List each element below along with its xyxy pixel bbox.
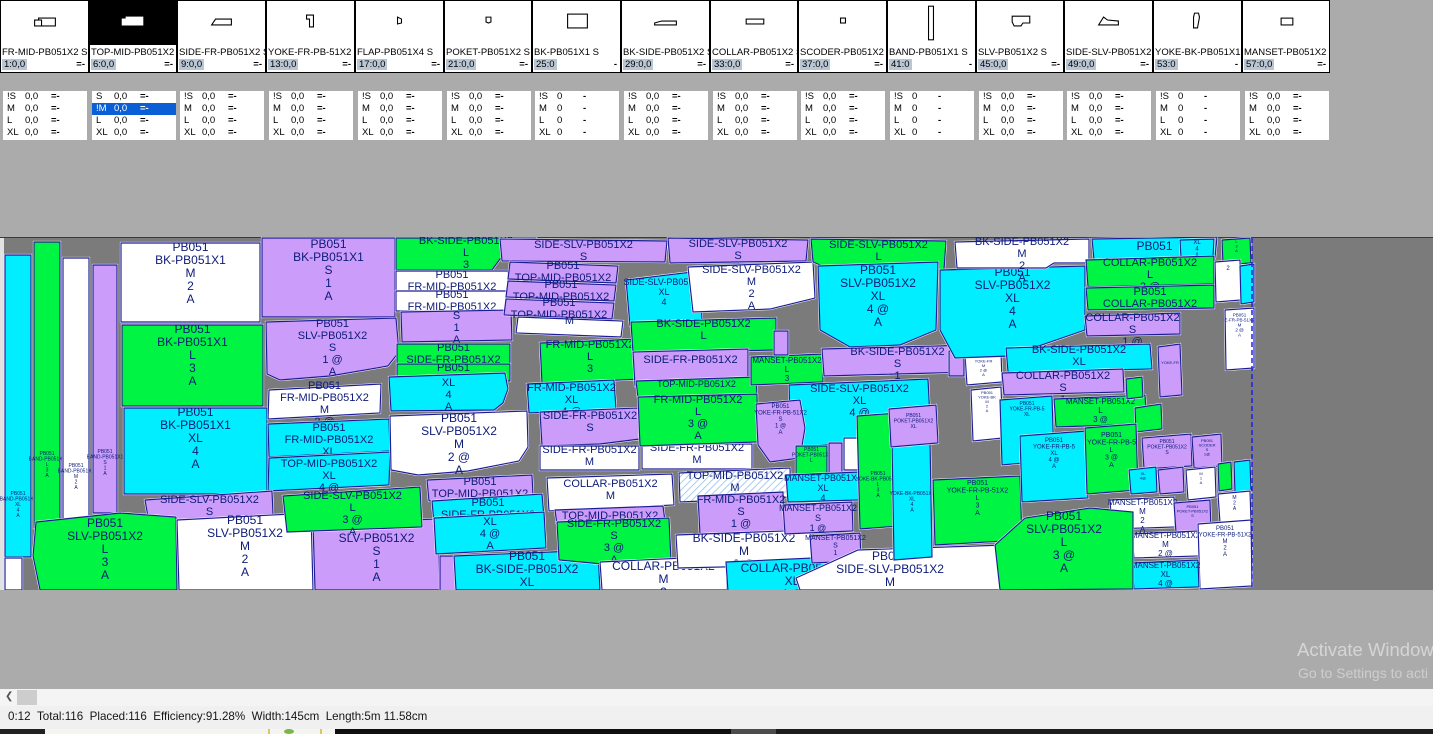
svg-text:YOKE-FR: YOKE-FR (1161, 360, 1179, 365)
svg-text:SIDE-FR-PB051X2: SIDE-FR-PB051X2 (643, 354, 737, 366)
svg-text:XL4@: XL4@ (1140, 471, 1146, 481)
svg-text:M: M (565, 315, 574, 327)
svg-text:TOP-MID-PB051X2: TOP-MID-PB051X2 (657, 379, 736, 389)
svg-text:PB051: PB051 (1136, 239, 1172, 253)
